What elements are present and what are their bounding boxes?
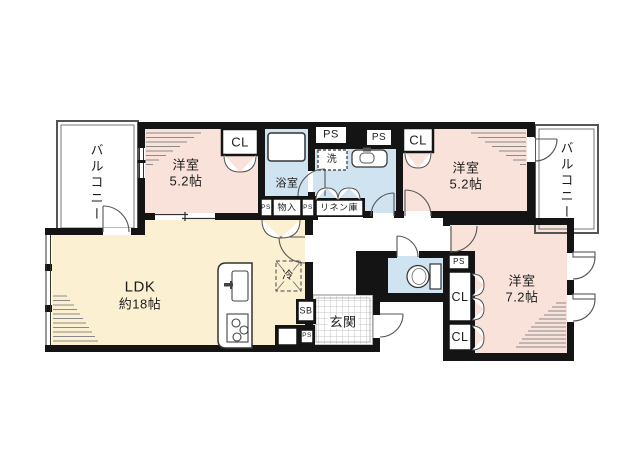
toilet-icon [407, 264, 441, 289]
balcony-left-label: バルコニー [90, 143, 103, 223]
closet-label-main-2: CL [452, 331, 469, 344]
ps-label-2: PS [372, 133, 386, 143]
washer-label: 洗 [327, 155, 338, 165]
closet-label-right-bedroom: CL [409, 134, 427, 147]
storage-label: 物入 [277, 204, 296, 213]
bathroom-label: 浴室 [276, 179, 299, 190]
bathtub-icon [268, 133, 305, 161]
floor-plan: バルコニー 洋室 5.2帖 CL 浴室 PS 洗 PS CL 洋室 5.2帖 バ… [0, 0, 640, 469]
ps-label-3: PS [261, 205, 271, 212]
ldk-name: LDK [125, 280, 156, 295]
refrigerator-label: 冷 [281, 271, 295, 282]
bedroom-right-name: 洋室 [452, 162, 479, 175]
ps-label-1: PS [323, 130, 339, 141]
shoe-box-label: SB [299, 307, 312, 316]
entrance-label: 玄関 [327, 316, 358, 329]
ldk-window-wall [46, 235, 51, 345]
bedroom-left-name: 洋室 [172, 159, 199, 172]
kitchen-counter [218, 263, 252, 348]
closet-label-left-bedroom: CL [231, 136, 249, 149]
closet-label-main-1: CL [452, 291, 469, 304]
balcony-right-label: バルコニー [560, 141, 573, 221]
bedroom-right-size: 5.2帖 [449, 178, 482, 191]
washbasin-icon [352, 148, 387, 168]
ps-label-4: PS [303, 205, 313, 212]
floor-plan-drawing [0, 0, 640, 469]
ldk-size: 約18帖 [119, 298, 161, 311]
ps-label-5: PS [302, 333, 312, 340]
bedroom-left-size: 5.2帖 [169, 175, 202, 188]
linen-closet-label: リネン庫 [320, 204, 358, 213]
bedroom-main-size: 7.2帖 [505, 291, 538, 304]
ps-label-6: PS [453, 258, 465, 266]
bedroom-main-name: 洋室 [508, 275, 535, 288]
sliding-door [155, 212, 215, 221]
